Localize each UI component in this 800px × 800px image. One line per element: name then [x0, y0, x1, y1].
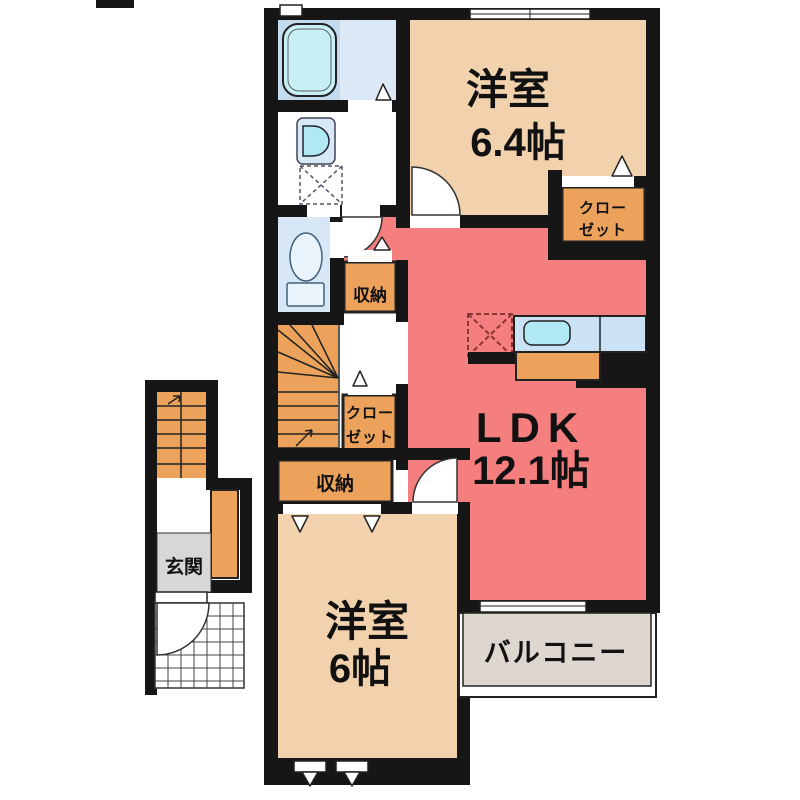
entrance-door [155, 592, 207, 603]
annex-wall-right-lower [240, 478, 252, 593]
bathtub-icon [283, 24, 336, 96]
door-storage-lower [283, 504, 381, 514]
kitchen-sink-icon [524, 321, 570, 345]
entrance-annex [145, 380, 252, 695]
annex-hall [157, 478, 206, 533]
floor-plan-svg: 洋室 6.4帖 LDK 12.1帖 洋室 6帖 バルコニー 玄関 収納 収納 ク… [0, 0, 800, 800]
door-storage-upper [348, 250, 392, 262]
annex-wall-right-upper [206, 380, 218, 485]
label-closet-middle-1: クロー [346, 405, 394, 422]
window-room2-right [336, 761, 368, 772]
label-closet-upper-2: ゼット [579, 221, 627, 239]
door-hall-ldk [396, 322, 408, 384]
door-ldk-north-gap [342, 205, 380, 217]
kitchen-cabinet [516, 352, 600, 380]
wall-right [646, 8, 660, 613]
label-closet-middle-2: ゼット [346, 428, 394, 446]
label-room2-size: 6帖 [329, 647, 391, 691]
entrance-porch [155, 603, 244, 688]
door-closet-upper [562, 176, 634, 187]
toilet-room [278, 217, 330, 312]
wall-closet-upper-stub [634, 176, 646, 187]
washbasin-bowl [303, 126, 329, 156]
wall-bath-room1 [396, 8, 410, 228]
label-room1-size: 6.4帖 [470, 121, 566, 165]
stairs-main [278, 325, 339, 452]
shoe-cabinet [211, 490, 238, 578]
door-washroom [307, 205, 340, 217]
label-ldk-size: 12.1帖 [472, 449, 590, 493]
door-bathroom [348, 100, 392, 112]
toilet-icon [290, 233, 322, 281]
window-room2-left [294, 761, 326, 772]
bathroom-floor [340, 20, 396, 100]
label-balcony: バルコニー [484, 638, 628, 668]
label-room2-name: 洋室 [325, 598, 409, 645]
label-storage-lower: 収納 [316, 472, 354, 495]
annex-wall-door-right [208, 580, 248, 593]
label-closet-upper-1: クロー [579, 200, 627, 217]
label-ldk-name: LDK [476, 404, 586, 451]
wall-toilet-bottom [264, 312, 344, 325]
door-room1-gap [410, 215, 460, 228]
bathroom-unit [278, 20, 396, 100]
wall-storage-lower-top [264, 448, 470, 460]
neighbor-unit-wall-fragment [96, 0, 134, 8]
kitchen-wall-stub [468, 352, 516, 364]
label-room1-name: 洋室 [466, 66, 550, 113]
wall-top [264, 8, 660, 20]
wall-closet-upper-bottom [548, 242, 660, 260]
washroom [278, 112, 396, 205]
ldk-area-top [396, 228, 548, 262]
label-storage-upper: 収納 [353, 285, 387, 305]
floor-plan-page: 洋室 6.4帖 LDK 12.1帖 洋室 6帖 バルコニー 玄関 収納 収納 ク… [0, 0, 800, 800]
window-bathroom [280, 5, 302, 16]
washroom-floor [278, 112, 396, 205]
door-toilet [330, 222, 344, 258]
toilet-tank [287, 283, 324, 306]
wall-left [264, 8, 278, 785]
door-room2-gap [412, 502, 458, 514]
label-entrance: 玄関 [165, 555, 203, 578]
